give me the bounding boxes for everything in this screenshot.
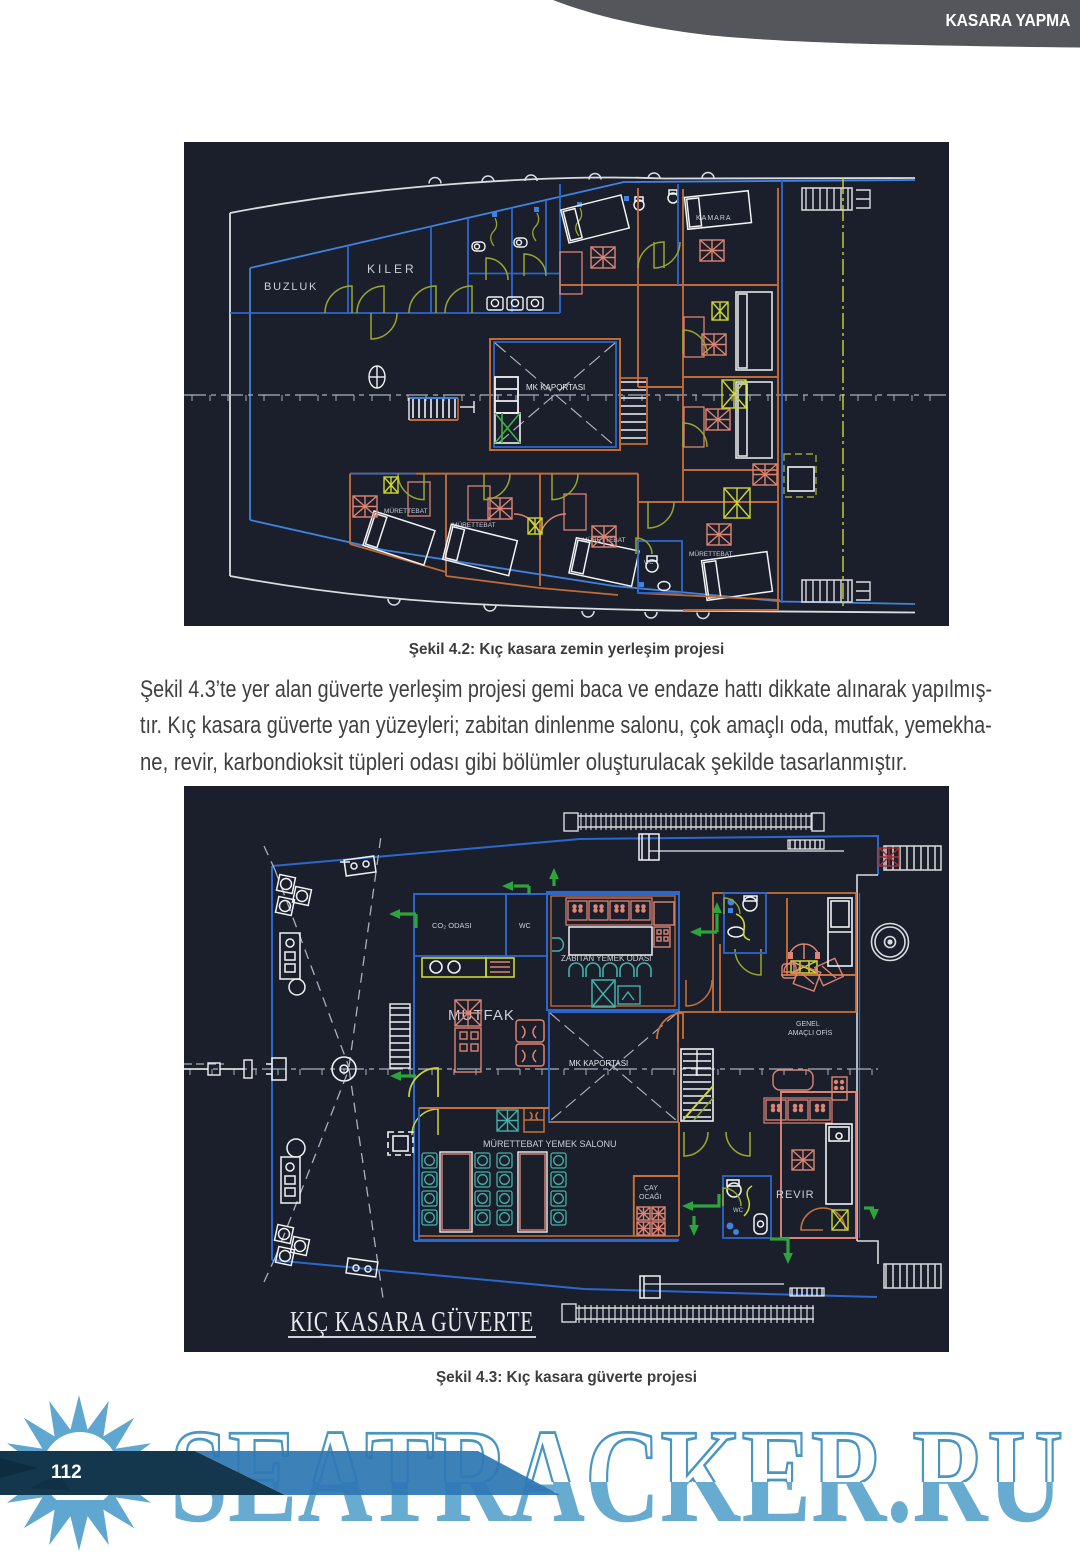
svg-text:WC: WC (644, 560, 653, 566)
svg-text:MK KAPORTASI: MK KAPORTASI (526, 383, 585, 392)
svg-text:KIÇ KASARA GÜVERTE: KIÇ KASARA GÜVERTE (290, 1306, 534, 1338)
svg-text:112: 112 (51, 1462, 82, 1483)
svg-text:WC: WC (519, 923, 531, 930)
svg-text:MK KAPORTASI: MK KAPORTASI (569, 1059, 628, 1068)
svg-text:ÇAY: ÇAY (644, 1185, 658, 1192)
svg-text:CO₂ ODASI: CO₂ ODASI (432, 921, 472, 930)
svg-text:OCAĞI: OCAĞI (639, 1192, 662, 1201)
svg-text:WC: WC (733, 1208, 744, 1214)
svg-text:BUZLUK: BUZLUK (264, 281, 318, 293)
svg-text:MÜRETTEBAT: MÜRETTEBAT (689, 550, 733, 558)
svg-text:GENEL: GENEL (796, 1021, 820, 1028)
svg-text:REVIR: REVIR (776, 1189, 815, 1201)
svg-text:ZABITAN YEMEK ODASI: ZABITAN YEMEK ODASI (561, 954, 651, 963)
svg-text:MÜRETTEBAT: MÜRETTEBAT (384, 507, 428, 515)
svg-text:MÜRETTEBAT YEMEK SALONU: MÜRETTEBAT YEMEK SALONU (483, 1139, 617, 1149)
svg-text:KILER: KILER (367, 262, 417, 276)
svg-text:AMAÇLI OFİS: AMAÇLI OFİS (788, 1028, 833, 1037)
